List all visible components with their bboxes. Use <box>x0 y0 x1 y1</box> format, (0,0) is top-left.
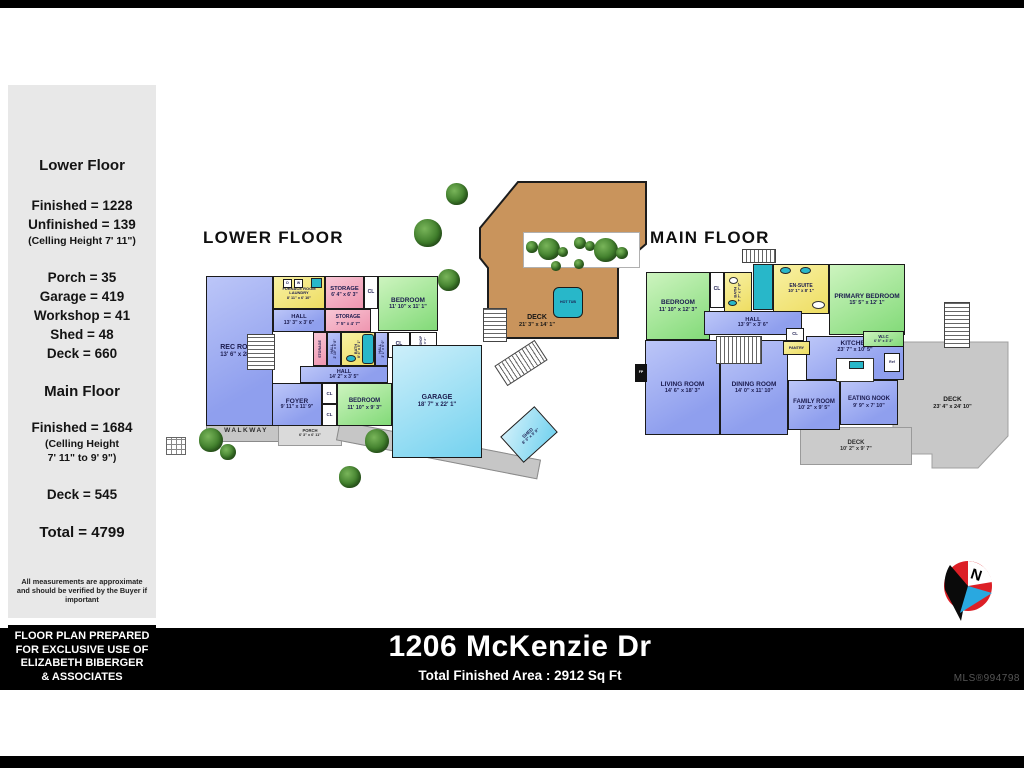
top-border <box>0 0 1024 8</box>
measurements-sidebar: Lower Floor Finished = 1228 Unfinished =… <box>8 85 156 618</box>
room-name: DECK <box>519 314 555 322</box>
room-dims: 10' 2" x 9' 7" <box>840 446 872 452</box>
room-dims: 13' 3" x 3' 6" <box>284 321 314 327</box>
room-lower-storage-mid: STORAGE7' 5" x 4' 7" <box>325 309 371 332</box>
tree-icon <box>594 238 618 262</box>
total-area-line: Total = 4799 <box>39 524 124 541</box>
room-dims: 8' 11" x 6' 10" <box>274 296 324 300</box>
room-name: CL <box>714 287 721 293</box>
room-name: FP <box>639 371 643 375</box>
prepared-line: FOR EXCLUSIVE USE OF <box>16 644 149 658</box>
room-dims: 11' 10" x 9' 3" <box>347 405 381 411</box>
room-name: PRIMARY BEDROOM <box>834 293 899 300</box>
lower-floor-title: LOWER FLOOR <box>203 228 344 248</box>
room-main-ref: Ref <box>884 353 900 372</box>
room-name: BEDROOM <box>659 299 697 306</box>
room-main-deck-large: DECK23' 4" x 24' 10" <box>905 390 1000 416</box>
room-name: W <box>297 282 300 286</box>
staircase <box>944 302 970 348</box>
prepared-line: ELIZABETH BIBERGER <box>21 657 144 671</box>
room-name: DECK <box>840 440 872 447</box>
room-main-deck-small: DECK10' 2" x 9' 7" <box>800 427 912 465</box>
room-dims: 10' 1" x 8' 1" <box>788 289 814 294</box>
prepared-line: FLOOR PLAN PREPARED <box>15 630 150 644</box>
room-name: STORAGE <box>336 315 361 321</box>
room-dims: 6' 4" x 6' 3" <box>330 293 359 299</box>
room-lower-storage-vert: STORAGE <box>313 332 327 366</box>
sidebar-line: Shed = 48 <box>50 325 113 344</box>
staircase <box>247 334 275 370</box>
room-name: CL <box>368 290 375 296</box>
room-main-pantry: PANTRY <box>783 341 810 355</box>
sidebar-line: Deck = 660 <box>47 344 117 363</box>
room-name: FAMILY ROOM <box>793 399 835 406</box>
side-steps <box>166 437 186 455</box>
room-name: BEDROOM <box>389 297 427 304</box>
room-name: WALKWAY <box>224 427 268 434</box>
tree-icon <box>574 259 584 269</box>
room-main-living-room: LIVING ROOM14' 6" x 18' 3" <box>645 340 720 435</box>
room-dims: 2' 10" x 6' 8" <box>334 339 338 358</box>
room-name: PANTRY <box>789 346 804 350</box>
total-finished-area: Total Finished Area : 2912 Sq Ft <box>156 668 884 683</box>
room-lower-washer: W <box>294 279 303 288</box>
sink-icon <box>800 267 811 274</box>
ceiling-height-note: 7' 11" to 9' 9") <box>48 451 117 465</box>
mls-number: MLS®994798 <box>940 673 1020 684</box>
tree-icon <box>558 247 568 257</box>
laundry-sink-icon <box>311 278 322 288</box>
room-lower-dryer: D <box>283 279 292 288</box>
title-block: 1206 McKenzie Dr Total Finished Area : 2… <box>156 630 884 683</box>
main-floor-heading: Main Floor <box>44 383 120 400</box>
room-main-cl-a: CL <box>710 272 724 308</box>
room-dims: 15' 5" x 12' 1" <box>834 300 899 306</box>
room-dims: 3' 1" x 6' 0" <box>382 340 386 358</box>
room-name: BEDROOM <box>347 398 381 405</box>
tree-icon <box>365 429 389 453</box>
sidebar-line: Workshop = 41 <box>34 306 130 325</box>
lower-floor-heading: Lower Floor <box>39 157 125 174</box>
room-name: FURNACE ROOM LAUNDRY <box>274 287 324 296</box>
tree-icon <box>551 261 561 271</box>
toilet-icon <box>812 301 825 309</box>
room-main-bath: BATH7' 7" x 7' 8" <box>724 272 752 312</box>
room-dims: 18' 7" x 22' 1" <box>418 402 457 409</box>
room-name: D <box>286 282 289 286</box>
sidebar-line: Deck = 545 <box>47 485 117 504</box>
tree-icon <box>339 466 361 488</box>
tree-icon <box>538 238 560 260</box>
tree-icon <box>438 269 460 291</box>
room-lower-hall-vert-left: HALL2' 10" x 6' 8" <box>327 332 341 366</box>
room-name: DECK <box>933 396 971 403</box>
room-dims: 23' 4" x 24' 10" <box>933 404 971 410</box>
room-dims: 14' 0" x 11' 10" <box>732 388 777 394</box>
room-dims: 11' 10" x 11' 1" <box>389 304 427 310</box>
staircase <box>494 340 547 386</box>
room-name: GARAGE <box>418 394 457 402</box>
room-lower-cl-3: CL <box>322 383 337 404</box>
room-name: Ref <box>889 361 895 365</box>
room-dims: 6' 3" x 6' 11" <box>299 433 321 437</box>
room-main-wic: W.I.C6' 5" x 3' 2" <box>863 331 904 347</box>
room-dims: 21' 3" x 14' 1" <box>519 322 555 328</box>
room-dims: 14' 6" x 18' 3" <box>661 388 705 394</box>
staircase <box>742 249 776 263</box>
room-lower-foyer: FOYER9' 11" x 11' 9" <box>272 383 322 426</box>
room-main-eating-nook: EATING NOOK9' 9" x 7' 10" <box>840 380 898 425</box>
north-compass-icon: N <box>934 556 1002 626</box>
room-main-bedroom: BEDROOM11' 10" x 12' 3" <box>646 272 710 340</box>
floor-plan-page: { "meta": { "address": "1206 McKenzie Dr… <box>0 0 1024 768</box>
disclaimer-text: All measurements are approximate and sho… <box>8 577 156 618</box>
room-dims: 23' 7" x 10' 5" <box>837 347 872 353</box>
room-name: LIVING ROOM <box>661 381 705 388</box>
room-dims: 6' 5" x 3' 2" <box>874 339 893 343</box>
room-dims: 14' 2" x 3' 5" <box>329 375 358 381</box>
room-dims: 13' 9" x 3' 6" <box>738 323 768 329</box>
room-main-family-room: FAMILY ROOM10' 2" x 9' 5" <box>788 380 840 430</box>
room-lower-storage-top: STORAGE6' 4" x 6' 3" <box>325 276 364 309</box>
sidebar-line: Finished = 1228 <box>32 196 133 215</box>
tree-icon <box>446 183 468 205</box>
bathtub-icon <box>362 334 374 364</box>
sidebar-line: Garage = 419 <box>40 287 124 306</box>
room-main-cl-c: CL <box>786 328 804 341</box>
shower-icon <box>753 264 773 310</box>
room-lower-hall-upper: HALL13' 3" x 3' 6" <box>273 309 325 332</box>
room-dims: 10' 2" x 9' 5" <box>793 405 835 411</box>
room-name: DINING ROOM <box>732 381 777 388</box>
prepared-notice: FLOOR PLAN PREPARED FOR EXCLUSIVE USE OF… <box>8 625 156 689</box>
sidebar-line: Porch = 35 <box>48 268 117 287</box>
tree-icon <box>526 241 538 253</box>
property-address: 1206 McKenzie Dr <box>156 630 884 664</box>
room-lower-bedroom-upper: BEDROOM11' 10" x 11' 1" <box>378 276 438 331</box>
room-main-fp: FP <box>635 364 647 382</box>
room-lower-hall-lower: HALL14' 2" x 3' 5" <box>300 366 388 383</box>
room-lower-garage: GARAGE18' 7" x 22' 1" <box>392 345 482 458</box>
room-lower-bedroom-lower: BEDROOM11' 10" x 9' 3" <box>337 383 392 426</box>
sidebar-line: Finished = 1684 <box>32 418 133 437</box>
room-name: HOT TUB <box>560 300 576 304</box>
sidebar-line: Unfinished = 139 <box>28 215 136 234</box>
room-name: CL <box>327 412 333 417</box>
room-dims: 9' 11" x 11' 9" <box>281 405 314 411</box>
room-name: EATING NOOK <box>848 396 890 403</box>
room-name: CL <box>327 391 333 396</box>
room-dims: 7' 7" x 7' 8" <box>738 282 742 301</box>
prepared-line: & ASSOCIATES <box>41 671 122 685</box>
kitchen-sink-icon <box>849 361 864 369</box>
toilet-icon <box>346 355 356 362</box>
ceiling-height-note: (Celling Height 7' 11") <box>28 234 136 248</box>
sink-icon <box>780 267 791 274</box>
room-dims: 7' 5" x 4' 7" <box>336 321 361 326</box>
tree-icon <box>616 247 628 259</box>
tree-icon <box>414 219 442 247</box>
room-lower-hot-tub: HOT TUB <box>553 287 583 318</box>
staircase <box>716 336 762 364</box>
room-name: CL <box>792 332 798 337</box>
room-lower-cl-1: CL <box>364 276 378 309</box>
room-lower-hall-vert-right: HALL3' 1" x 6' 0" <box>375 332 388 366</box>
sink-icon <box>728 300 737 306</box>
room-main-primary-bedroom: PRIMARY BEDROOM15' 5" x 12' 1" <box>829 264 905 335</box>
room-dims: 11' 10" x 12' 3" <box>659 307 697 313</box>
bottom-border <box>0 756 1024 768</box>
staircase <box>483 308 507 342</box>
tree-icon <box>220 444 236 460</box>
ceiling-height-note: (Celling Height <box>45 437 119 451</box>
toilet-icon <box>729 277 738 284</box>
room-name: STORAGE <box>318 340 322 358</box>
room-lower-cl-4: CL <box>322 404 337 426</box>
room-dims: 9' 9" x 7' 10" <box>848 403 890 409</box>
main-floor-title: MAIN FLOOR <box>650 228 770 248</box>
